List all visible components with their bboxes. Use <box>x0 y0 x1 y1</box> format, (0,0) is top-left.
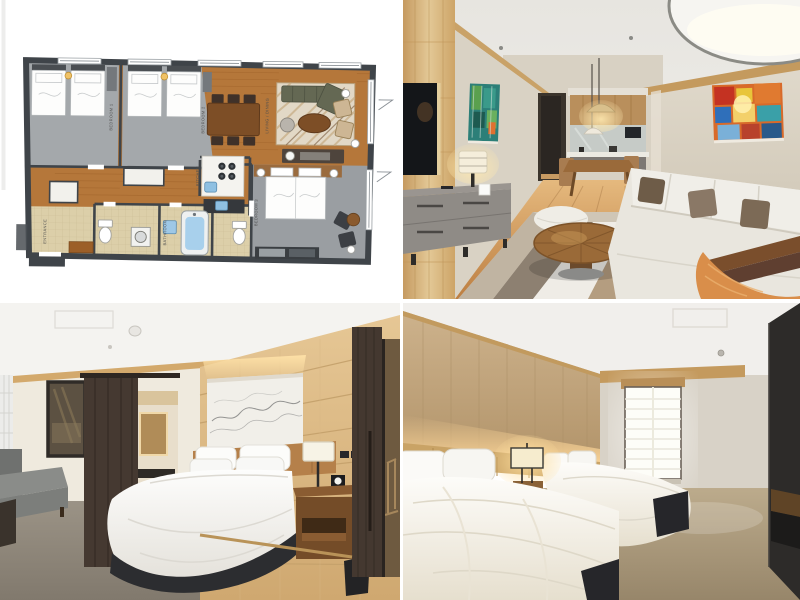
right-wall-painting <box>712 83 784 143</box>
label-bedroom1: BEDROOM 1 <box>108 103 113 131</box>
twin-bedroom-scene <box>403 303 800 600</box>
art-panel <box>203 355 306 451</box>
wardrobe <box>769 303 800 600</box>
tv <box>403 83 441 175</box>
photo-grid: BEDROOM 1 BEDROOM 2 LIVING / DINING KITC… <box>0 0 800 600</box>
king-bedroom-photo[interactable] <box>0 303 400 600</box>
label-entrance: ENTRANCE <box>42 219 47 244</box>
left-wall-painting <box>468 83 500 144</box>
twin-bedroom-photo[interactable] <box>403 303 800 600</box>
sofa <box>608 168 800 299</box>
floor-plan-image[interactable]: BEDROOM 1 BEDROOM 2 LIVING / DINING KITC… <box>0 0 400 299</box>
label-bedroom2: BEDROOM 2 <box>200 106 205 134</box>
right-door-mirror <box>352 327 400 577</box>
scan-edge-artifact <box>2 0 6 190</box>
king-bedroom-scene <box>0 303 400 600</box>
plan-dining-set <box>207 94 260 146</box>
plan-entry <box>69 242 93 253</box>
bed-2-base <box>653 491 689 537</box>
plan-kitchen <box>201 156 245 213</box>
interior-window <box>48 382 85 456</box>
label-living: LIVING / DINING <box>264 98 269 134</box>
label-kitchen: KITCHEN <box>195 166 200 186</box>
label-bedroom3: BEDROOM 3 <box>253 199 258 227</box>
sprinkler <box>718 350 724 356</box>
living-room-photo[interactable] <box>403 0 800 299</box>
living-room-scene <box>403 0 800 299</box>
label-bathroom: BATHROOM <box>162 220 167 246</box>
plan-bedroom1 <box>31 64 117 116</box>
floor-plan-drawing: BEDROOM 1 BEDROOM 2 LIVING / DINING KITC… <box>0 0 400 299</box>
plan-bedroom2 <box>127 65 212 117</box>
